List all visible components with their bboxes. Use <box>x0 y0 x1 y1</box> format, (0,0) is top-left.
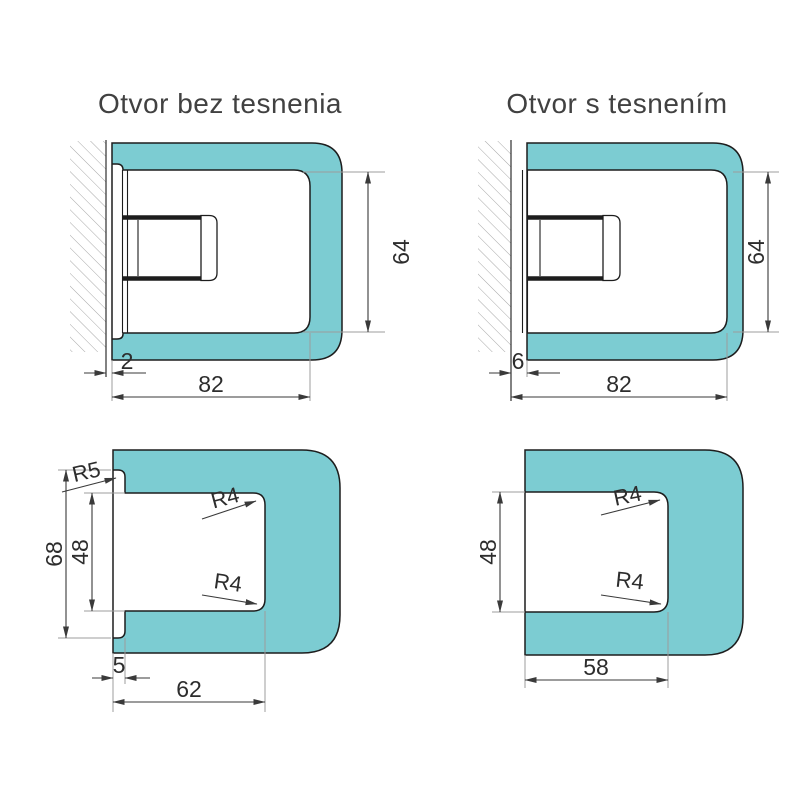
dim-cutout-height-48: 48 <box>67 493 125 611</box>
dim-label-cutout-width: 58 <box>583 654 609 680</box>
dim-label-lip-depth: 5 <box>113 652 126 678</box>
panel-bottom-left-cutout-no-seal: 68 48 R5 R4 R4 5 <box>41 450 340 712</box>
hinge-end-cap <box>603 216 620 281</box>
dim-label-height: 64 <box>388 239 414 265</box>
panel-bottom-right-cutout-with-seal: 48 R4 R4 58 <box>475 450 743 688</box>
title-opening-without-seal: Otvor bez tesnenia <box>98 88 342 119</box>
dim-cutout-height-48: 48 <box>475 492 525 612</box>
glass-panel <box>113 450 340 653</box>
glass-panel <box>527 143 743 360</box>
radius-callout-r4-bottom: R4 <box>601 567 661 604</box>
dim-label-gap: 2 <box>121 348 134 374</box>
hinge-section <box>123 170 218 333</box>
dim-label-cutout-height: 48 <box>67 539 93 565</box>
radius-label-inner-top: R4 <box>611 481 644 511</box>
glass-panel <box>112 143 342 360</box>
dim-label-opening-height: 68 <box>41 541 67 567</box>
wall-hatch <box>70 141 106 352</box>
title-opening-with-seal: Otvor s tesnením <box>506 88 727 119</box>
radius-callout-r5: R5 <box>62 456 116 492</box>
hinge-end-cap <box>201 216 217 281</box>
dim-label-width: 82 <box>606 371 632 397</box>
radius-label-inner-bottom: R4 <box>614 567 645 595</box>
dim-label-width: 82 <box>198 371 224 397</box>
dim-label-cutout-width: 62 <box>176 676 202 702</box>
dim-label-gap: 6 <box>512 348 525 374</box>
drawing-svg: Otvor bez tesnenia Otvor s tesnením 64 <box>0 0 800 800</box>
wall-hatch <box>478 141 511 352</box>
radius-label-inner-bottom: R4 <box>212 568 243 597</box>
dim-label-height: 64 <box>743 239 769 265</box>
radius-callout-r4-bottom: R4 <box>202 568 257 604</box>
panel-top-left-section-no-seal: 64 2 82 <box>70 140 414 401</box>
panel-top-right-section-with-seal: 64 6 82 <box>478 140 779 401</box>
technical-drawing-page: Otvor bez tesnenia Otvor s tesnením 64 <box>0 0 800 800</box>
dim-label-cutout-height: 48 <box>475 539 501 565</box>
hinge-section <box>523 170 621 333</box>
